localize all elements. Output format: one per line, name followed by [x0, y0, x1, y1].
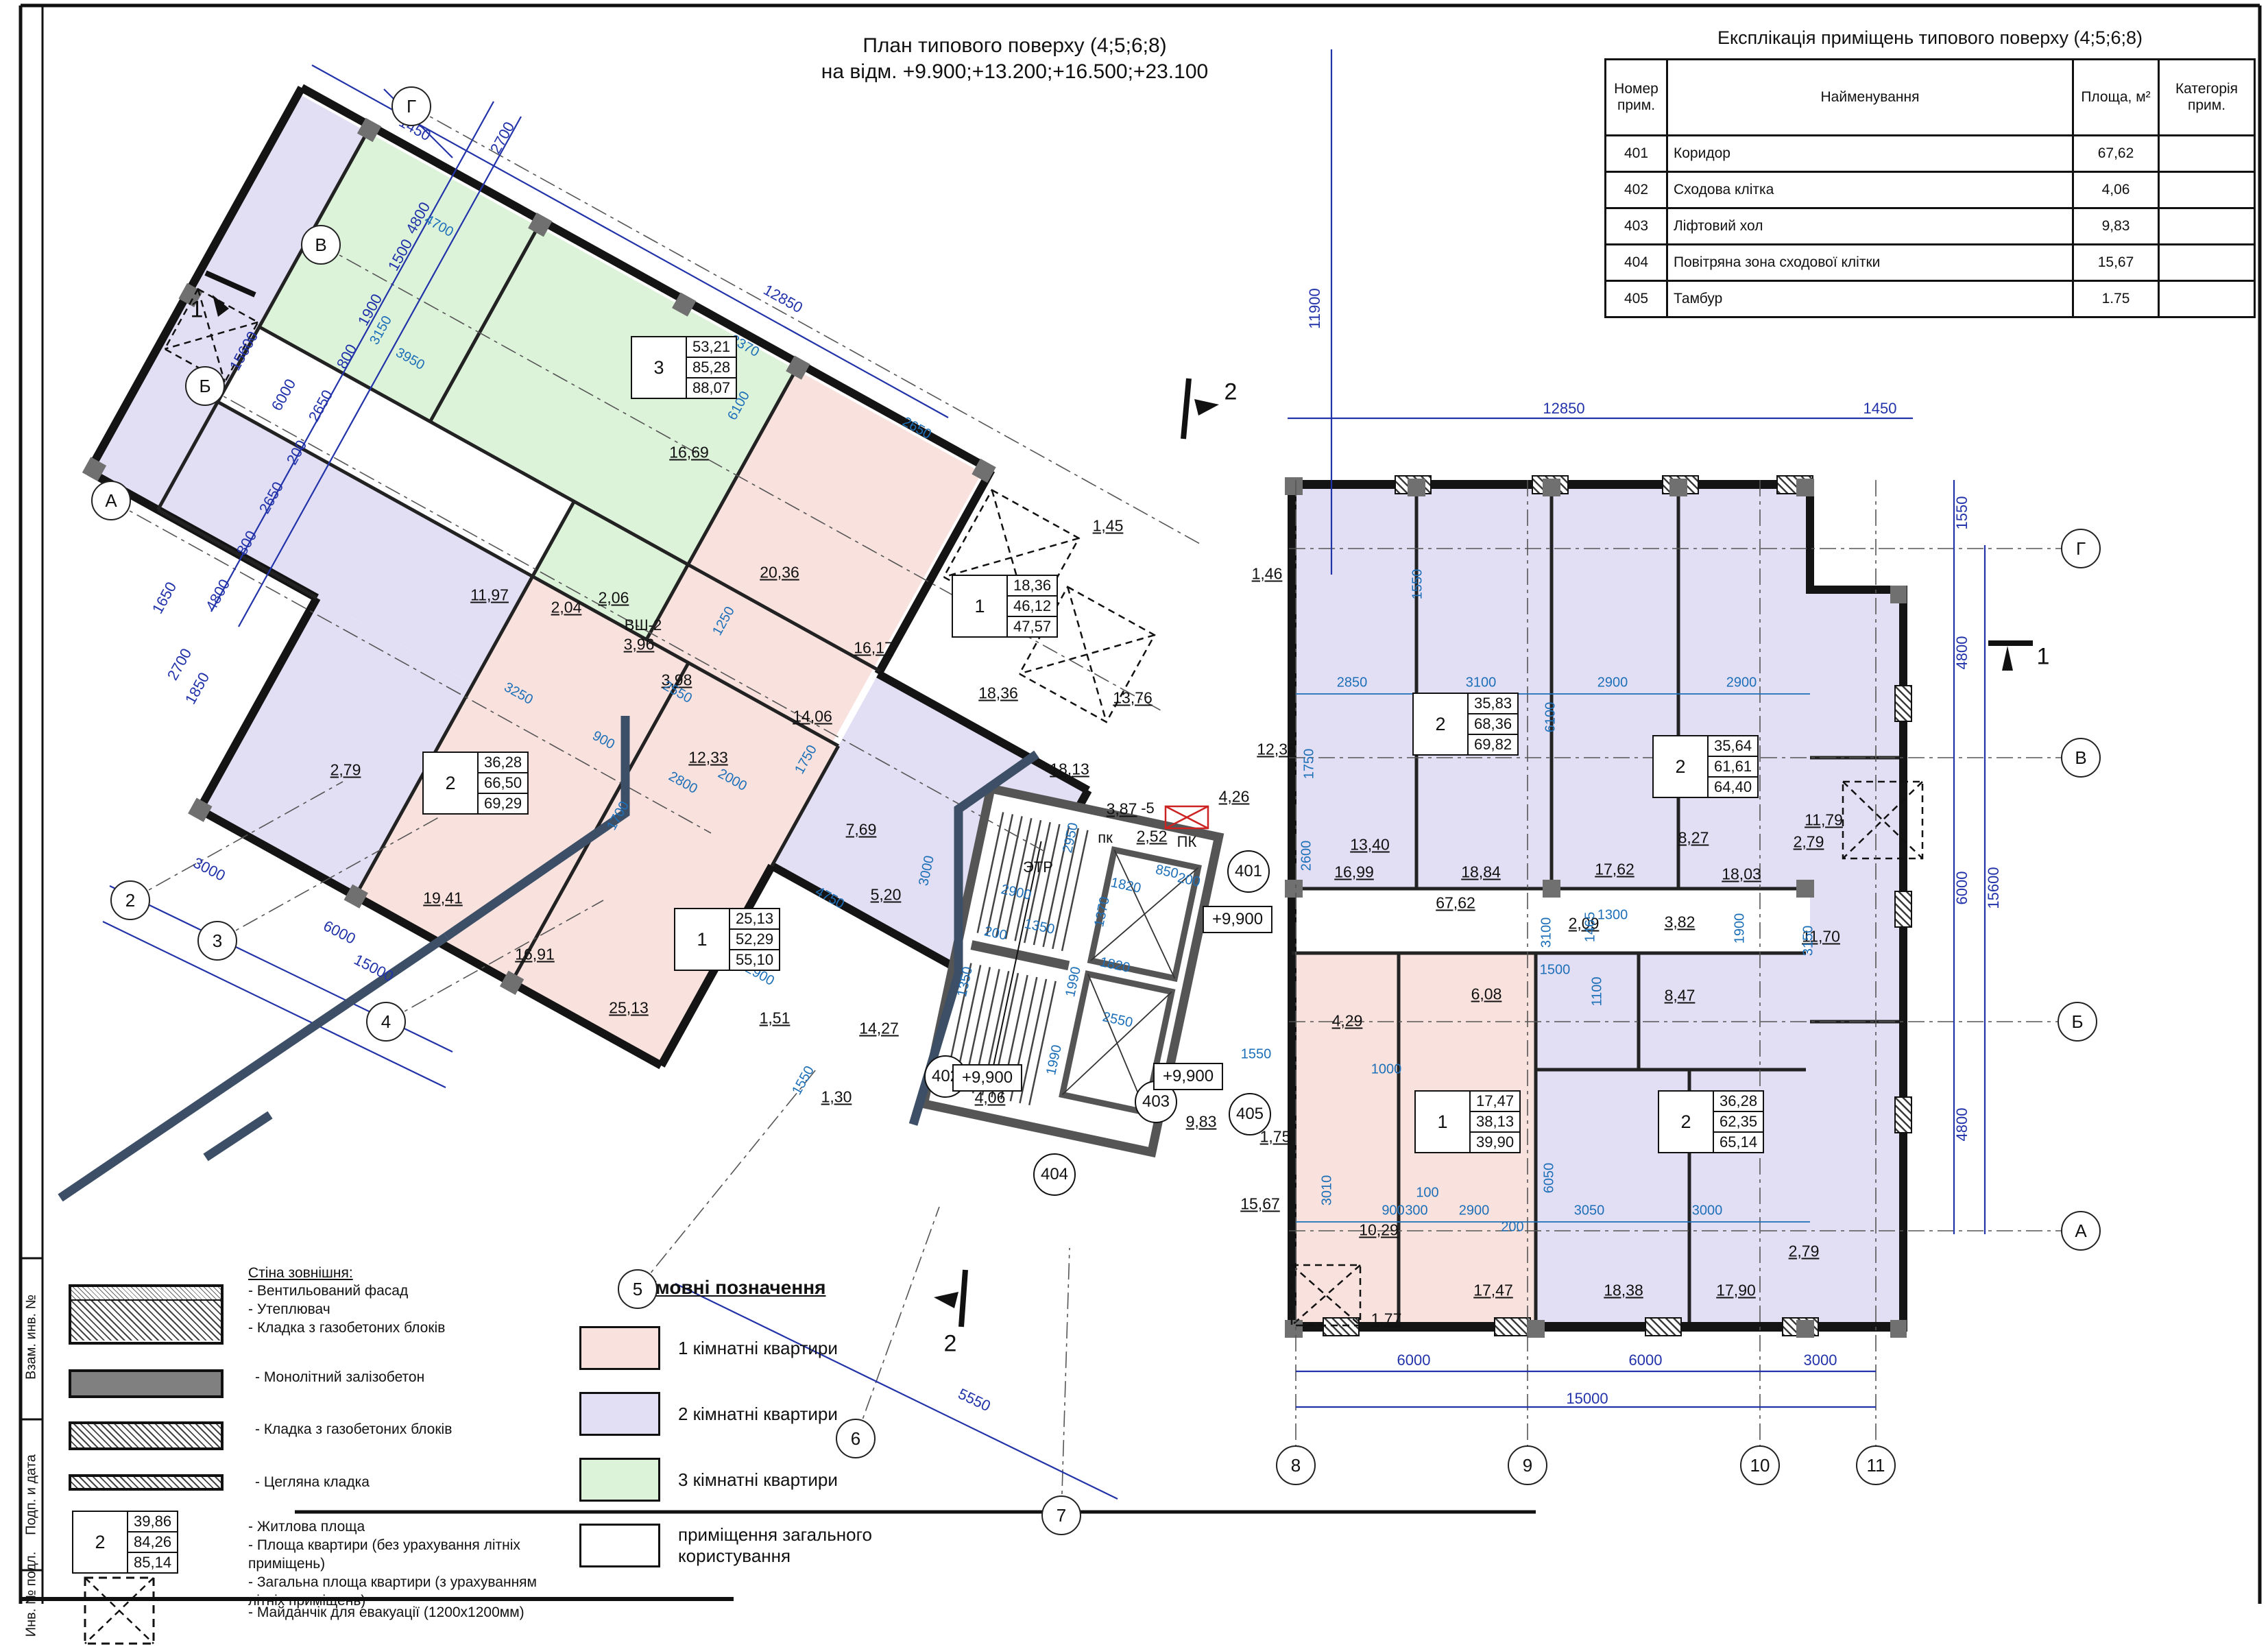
apartment-rooms-count[interactable]: 3 — [631, 337, 686, 398]
axis-bubble-label[interactable]: 6 — [851, 1428, 860, 1450]
plan-label[interactable]: 15000 — [1566, 1390, 1608, 1408]
plan-label[interactable]: 2650 — [305, 387, 337, 424]
axis-bubble-3[interactable]: 3 — [197, 921, 237, 961]
axis-bubble-label[interactable]: 10 — [1750, 1455, 1770, 1476]
total-area[interactable]: 65,14 — [1713, 1132, 1763, 1153]
axis-bubble-4[interactable]: 4 — [366, 1002, 406, 1042]
plan-label[interactable]: 5,20 — [871, 886, 902, 904]
room-number-label[interactable]: 404 — [1041, 1165, 1068, 1184]
plan-label[interactable]: 6050 — [1542, 1163, 1558, 1194]
axis-bubble-label[interactable]: Б — [199, 376, 210, 397]
plan-label[interactable]: 2,06 — [599, 589, 629, 608]
plan-label[interactable]: 900 — [1382, 1203, 1404, 1219]
axis-bubble-В[interactable]: В — [301, 225, 341, 265]
axis-bubble-label[interactable]: В — [2075, 747, 2086, 769]
plan-label[interactable]: 4800 — [1953, 1108, 1971, 1142]
plan-label[interactable]: 2,79 — [1794, 833, 1824, 852]
total-area[interactable]: 88,07 — [686, 378, 736, 398]
evacuation-label: - Майданчік для евакуації (1200х1200мм) — [248, 1604, 524, 1621]
plan-label[interactable]: 12,33 — [688, 749, 728, 767]
plan-label[interactable]: 1750 — [1302, 749, 1318, 780]
plan-label[interactable]: 3000 — [1692, 1203, 1723, 1219]
plan-label[interactable]: 6100 — [1543, 702, 1559, 733]
plan-label[interactable]: 17,47 — [1473, 1282, 1513, 1300]
axis-bubble-label[interactable]: А — [2075, 1221, 2086, 1242]
plan-label[interactable]: 2900 — [1726, 675, 1757, 691]
plan-label[interactable]: 11,79 — [1805, 811, 1843, 830]
plan-label[interactable]: 300 — [1405, 1203, 1427, 1219]
axis-bubble-8[interactable]: 8 — [1276, 1445, 1316, 1485]
plan-label[interactable]: 1550 — [1953, 496, 1971, 530]
plan-label[interactable]: 4800 — [202, 576, 234, 614]
plan-label[interactable]: 1300 — [1597, 908, 1628, 924]
plan-label[interactable]: 2900 — [1597, 675, 1628, 691]
plan-label[interactable]: 6000 — [1397, 1351, 1431, 1369]
plan-label[interactable]: 4750 — [812, 884, 847, 913]
axis-bubble-label[interactable]: 3 — [213, 930, 222, 952]
plan-label[interactable]: 2,52 — [1137, 828, 1168, 846]
plan-label[interactable]: 4,29 — [1332, 1012, 1363, 1031]
plan-label[interactable]: 20,36 — [760, 564, 799, 582]
axis-bubble-label[interactable]: 4 — [381, 1011, 391, 1033]
living-area[interactable]: 36,28 — [478, 752, 528, 773]
plan-label[interactable]: 19,41 — [423, 889, 463, 908]
plan-label[interactable]: 3010 — [1320, 1175, 1336, 1206]
plan-label[interactable]: 2650 — [256, 479, 287, 516]
plan-label[interactable]: 2700 — [164, 645, 195, 683]
plan-label[interactable]: 1750 — [792, 743, 821, 777]
plan-label[interactable]: 1700 — [604, 799, 633, 833]
room-number-404[interactable]: 404 — [1033, 1153, 1076, 1196]
plan-label[interactable]: 1370 — [1091, 895, 1113, 928]
plan-label[interactable]: 18,38 — [1604, 1282, 1643, 1300]
plan-label[interactable]: 9,83 — [1186, 1113, 1217, 1131]
elevation-mark[interactable]: +9,900 — [1153, 1063, 1223, 1090]
total-area[interactable]: 69,29 — [478, 793, 528, 814]
plan-label[interactable]: 1550 — [1241, 1047, 1272, 1063]
plan-label[interactable]: 8,47 — [1665, 987, 1696, 1005]
axis-bubble-7[interactable]: 7 — [1041, 1495, 1081, 1535]
apartment-area-table[interactable]: 236,2862,3565,14 — [1658, 1090, 1764, 1153]
living-area[interactable]: 35,64 — [1708, 736, 1758, 756]
plan-label[interactable]: 10,29 — [1359, 1221, 1399, 1240]
apartment-rooms-count[interactable]: 2 — [1413, 693, 1468, 755]
axis-bubble-А[interactable]: А — [91, 481, 131, 520]
plan-label[interactable]: 1820 — [1098, 954, 1131, 976]
apartment-rooms-count[interactable]: 2 — [1653, 736, 1708, 797]
axis-bubble-9[interactable]: 9 — [1508, 1445, 1547, 1485]
living-area[interactable]: 17,47 — [1470, 1091, 1520, 1111]
plan-label[interactable]: 18,84 — [1461, 863, 1501, 882]
plan-label[interactable]: 15,67 — [1240, 1195, 1280, 1214]
plan-label[interactable]: 13,40 — [1350, 836, 1390, 854]
plan-label[interactable]: 2000 — [715, 766, 749, 795]
plan-label[interactable]: 200 — [982, 924, 1008, 943]
plan-label[interactable]: 17,62 — [1595, 861, 1634, 879]
axis-bubble-label[interactable]: Г — [2076, 538, 2086, 560]
axis-bubble-label[interactable]: А — [105, 490, 117, 512]
plan-label[interactable]: 3000 — [916, 854, 938, 887]
apartment-area[interactable]: 46,12 — [1007, 596, 1057, 616]
apartment-area-table[interactable]: 236,2866,5069,29 — [422, 752, 529, 815]
plan-label[interactable]: пк — [1098, 829, 1113, 847]
plan-label[interactable]: 16,99 — [1334, 863, 1374, 882]
plan-label[interactable]: 2650 — [900, 414, 934, 443]
apartment-area[interactable]: 68,36 — [1468, 714, 1518, 734]
plan-label[interactable]: 1850 — [182, 669, 213, 707]
plan-label[interactable]: 16,69 — [669, 444, 709, 462]
plan-label[interactable]: 3,87 — [1107, 800, 1137, 819]
apartment-area-table[interactable]: 353,2185,2888,07 — [631, 336, 737, 399]
plan-label[interactable]: 2900 — [1000, 882, 1033, 904]
plan-label[interactable]: 1550 — [789, 1063, 818, 1098]
axis-bubble-6[interactable]: 6 — [836, 1419, 876, 1458]
plan-label[interactable]: 1500 — [385, 236, 416, 274]
plan-label[interactable]: 6000 — [1953, 871, 1971, 905]
axis-bubble-Г[interactable]: Г — [391, 86, 431, 126]
plan-label[interactable]: 1990 — [1043, 1044, 1065, 1077]
living-area[interactable]: 53,21 — [686, 337, 736, 357]
apartment-area-table[interactable]: 235,6461,6164,40 — [1652, 735, 1759, 798]
plan-label[interactable]: 2900 — [1459, 1203, 1490, 1219]
plan-label[interactable]: 2550 — [1101, 1009, 1134, 1031]
plan-label[interactable]: 200 — [1176, 870, 1201, 890]
plan-label[interactable]: 100 — [1416, 1186, 1438, 1201]
plan-label[interactable]: 15000 — [351, 951, 396, 986]
total-area[interactable]: 47,57 — [1007, 616, 1057, 637]
plan-label[interactable]: 7,69 — [846, 821, 877, 839]
apartment-area[interactable]: 85,28 — [686, 357, 736, 378]
plan-label[interactable]: 2800 — [666, 769, 700, 797]
plan-label[interactable]: 200 — [1501, 1220, 1523, 1236]
apartment-area-table[interactable]: 235,8368,3669,82 — [1412, 693, 1519, 756]
apartment-area-table[interactable]: 118,3646,1247,57 — [952, 575, 1058, 638]
plan-label[interactable]: 6,08 — [1471, 985, 1502, 1004]
plan-label[interactable]: 200 — [283, 437, 311, 468]
total-area[interactable]: 55,10 — [729, 950, 780, 970]
axis-bubble-label[interactable]: В — [315, 235, 326, 256]
plan-label[interactable]: 16,91 — [515, 946, 555, 964]
apartment-rooms-count[interactable]: 2 — [423, 752, 478, 814]
plan-label[interactable]: 3000 — [190, 854, 228, 885]
apartment-rooms-count[interactable]: 1 — [1415, 1091, 1470, 1153]
axis-bubble-label[interactable]: 11 — [1867, 1455, 1885, 1476]
plan-label[interactable]: 14,06 — [793, 708, 832, 726]
plan-label[interactable]: 13,76 — [1113, 689, 1153, 708]
apartment-area-table[interactable]: 125,1352,2955,10 — [674, 908, 780, 971]
sheet: { "title": {"line1": "План типового пове… — [0, 0, 2268, 1604]
plan-label[interactable]: 4700 — [422, 212, 456, 241]
plan-label[interactable]: 800 — [233, 528, 261, 559]
plan-label[interactable]: 1250 — [710, 604, 738, 638]
plan-label[interactable]: 850 — [1154, 862, 1179, 882]
apartment-area[interactable]: 61,61 — [1708, 756, 1758, 777]
plan-label[interactable]: 1900 — [1733, 913, 1748, 944]
plan-label[interactable]: 6000 — [320, 917, 358, 948]
axis-bubble-label[interactable]: 8 — [1291, 1455, 1301, 1476]
axis-bubble-label[interactable]: Г — [407, 96, 416, 117]
plan-label[interactable]: 1,51 — [760, 1009, 791, 1028]
plan-label[interactable]: 12,35 — [1257, 741, 1296, 759]
plan-label[interactable]: 1,45 — [1093, 517, 1124, 536]
plan-label[interactable]: 2,79 — [330, 761, 361, 780]
axis-bubble-В[interactable]: В — [2061, 738, 2101, 778]
plan-label[interactable]: 25,13 — [609, 999, 649, 1018]
plan-label[interactable]: 1550 — [1410, 569, 1426, 600]
apartment-area-table[interactable]: 117,4738,1339,90 — [1414, 1090, 1521, 1153]
plan-label[interactable]: 14,27 — [859, 1020, 899, 1038]
room-number-label[interactable]: 403 — [1142, 1092, 1170, 1111]
plan-label[interactable]: 12850 — [760, 281, 806, 317]
plan-label[interactable]: 3,96 — [624, 636, 655, 654]
total-area[interactable]: 39,90 — [1470, 1132, 1520, 1153]
axis-bubble-label[interactable]: Б — [2071, 1011, 2083, 1033]
living-area[interactable]: 18,36 — [1007, 575, 1057, 596]
plan-label[interactable]: -5 — [1141, 800, 1155, 817]
plan-label[interactable]: 3100 — [1466, 675, 1497, 691]
plan-label[interactable]: 1 — [191, 297, 204, 324]
plan-label[interactable]: 2600 — [1299, 841, 1315, 871]
axis-bubble-label[interactable]: 2 — [125, 890, 135, 911]
axis-bubble-11[interactable]: 11 — [1856, 1445, 1896, 1485]
plan-label[interactable]: 800 — [333, 341, 361, 372]
plan-label[interactable]: 1650 — [149, 579, 180, 616]
axis-bubble-label[interactable]: 5 — [633, 1279, 642, 1300]
plan-label[interactable]: 2,79 — [1789, 1242, 1820, 1261]
plan-label[interactable]: 1,46 — [1252, 565, 1283, 584]
room-number-label[interactable]: 405 — [1236, 1105, 1264, 1124]
living-area[interactable]: 25,13 — [729, 909, 780, 929]
plan-label[interactable]: 4,26 — [1219, 788, 1250, 806]
living-area[interactable]: 36,28 — [1713, 1091, 1763, 1111]
plan-label[interactable]: 2700 — [487, 119, 518, 156]
apartment-area[interactable]: 66,50 — [478, 773, 528, 793]
apartment-rooms-count[interactable]: 1 — [675, 909, 729, 970]
plan-label[interactable]: 67,62 — [1436, 894, 1475, 913]
plan-label[interactable]: 1500 — [1540, 963, 1571, 978]
total-area[interactable]: 64,40 — [1708, 777, 1758, 797]
room-number-405[interactable]: 405 — [1229, 1093, 1271, 1135]
plan-label[interactable]: 2,04 — [551, 599, 582, 617]
plan-label[interactable]: 8,27 — [1678, 829, 1709, 847]
plan-label[interactable]: 15600 — [1985, 867, 2003, 909]
plan-label[interactable]: 6000 — [268, 376, 300, 413]
plan-label[interactable]: 3250 — [501, 680, 535, 708]
plan-label[interactable]: 3950 — [393, 345, 427, 374]
plan-label[interactable]: 1000 — [1371, 1062, 1402, 1078]
plan-label[interactable]: 4800 — [1953, 636, 1971, 670]
total-area[interactable]: 69,82 — [1468, 734, 1518, 755]
plan-label[interactable]: 2850 — [1337, 675, 1368, 691]
living-area[interactable]: 35,83 — [1468, 693, 1518, 714]
apartment-area[interactable]: 62,35 — [1713, 1111, 1763, 1132]
plan-label[interactable]: 1100 — [1590, 976, 1606, 1006]
plan-label[interactable]: 3100 — [1539, 917, 1555, 948]
plan-label[interactable]: 11900 — [1306, 288, 1324, 329]
plan-label[interactable]: ПК — [1177, 833, 1197, 851]
plan-label[interactable]: 1990 — [1063, 965, 1085, 998]
plan-label[interactable]: 1,30 — [821, 1088, 852, 1107]
plan-label[interactable]: 6000 — [1629, 1351, 1663, 1369]
axis-bubble-Б[interactable]: Б — [2058, 1002, 2097, 1042]
plan-label[interactable]: 2 — [1225, 379, 1238, 406]
plan-label[interactable]: 18,13 — [1050, 760, 1089, 779]
plan-label[interactable]: 1350 — [954, 965, 976, 998]
plan-label[interactable]: ЭТР — [1023, 858, 1053, 876]
axis-bubble-2[interactable]: 2 — [110, 880, 150, 920]
plan-label[interactable]: 1450 — [1863, 400, 1897, 418]
apartment-area[interactable]: 38,13 — [1470, 1111, 1520, 1132]
axis-bubble-Б[interactable]: Б — [185, 366, 225, 406]
plan-label[interactable]: 1465 — [1583, 912, 1599, 943]
plan-label[interactable]: 3050 — [1574, 1203, 1605, 1219]
plan-label[interactable]: 1,75 — [1260, 1128, 1291, 1146]
elevation-mark[interactable]: +9,900 — [1203, 906, 1272, 933]
apartment-rooms-count[interactable]: 1 — [952, 575, 1007, 637]
plan-label[interactable]: 900 — [590, 728, 617, 753]
plan-label[interactable]: 5550 — [955, 1385, 993, 1415]
plan-label[interactable]: 2 — [944, 1331, 957, 1358]
room-number-label[interactable]: 401 — [1235, 862, 1262, 881]
plan-label[interactable]: 3150 — [1801, 926, 1817, 957]
plan-label[interactable]: 12850 — [1543, 400, 1584, 418]
plan-label[interactable]: 1350 — [1023, 916, 1056, 938]
plan-label[interactable]: 2950 — [1060, 821, 1082, 854]
plan-label[interactable]: 16,17 — [854, 639, 893, 658]
axis-bubble-10[interactable]: 10 — [1740, 1445, 1780, 1485]
axis-bubble-А[interactable]: А — [2061, 1211, 2101, 1251]
plan-label[interactable]: 1820 — [1109, 875, 1142, 897]
plan-label[interactable]: 17,90 — [1716, 1282, 1756, 1300]
apartment-rooms-count[interactable]: 2 — [1658, 1091, 1713, 1153]
plan-label[interactable]: 11,97 — [470, 586, 509, 605]
apartment-area[interactable]: 52,29 — [729, 929, 780, 950]
plan-label[interactable]: 1,77 — [1371, 1310, 1402, 1329]
axis-bubble-5[interactable]: 5 — [618, 1269, 658, 1309]
elevation-mark[interactable]: +9,900 — [952, 1064, 1022, 1092]
plan-label[interactable]: 18,03 — [1722, 865, 1761, 884]
axis-bubble-Г[interactable]: Г — [2061, 529, 2101, 568]
plan-label[interactable]: 1 — [2037, 644, 2050, 671]
plan-label[interactable]: 3000 — [1804, 1351, 1837, 1369]
room-number-401[interactable]: 401 — [1227, 850, 1270, 893]
plan-label[interactable]: 15600 — [226, 328, 262, 374]
axis-bubble-label[interactable]: 9 — [1523, 1455, 1532, 1476]
plan-label[interactable]: 18,36 — [978, 684, 1018, 703]
plan-label[interactable]: 3,82 — [1665, 913, 1696, 932]
plan-label[interactable]: ВШ-2 — [625, 616, 662, 634]
axis-bubble-label[interactable]: 7 — [1057, 1505, 1066, 1526]
